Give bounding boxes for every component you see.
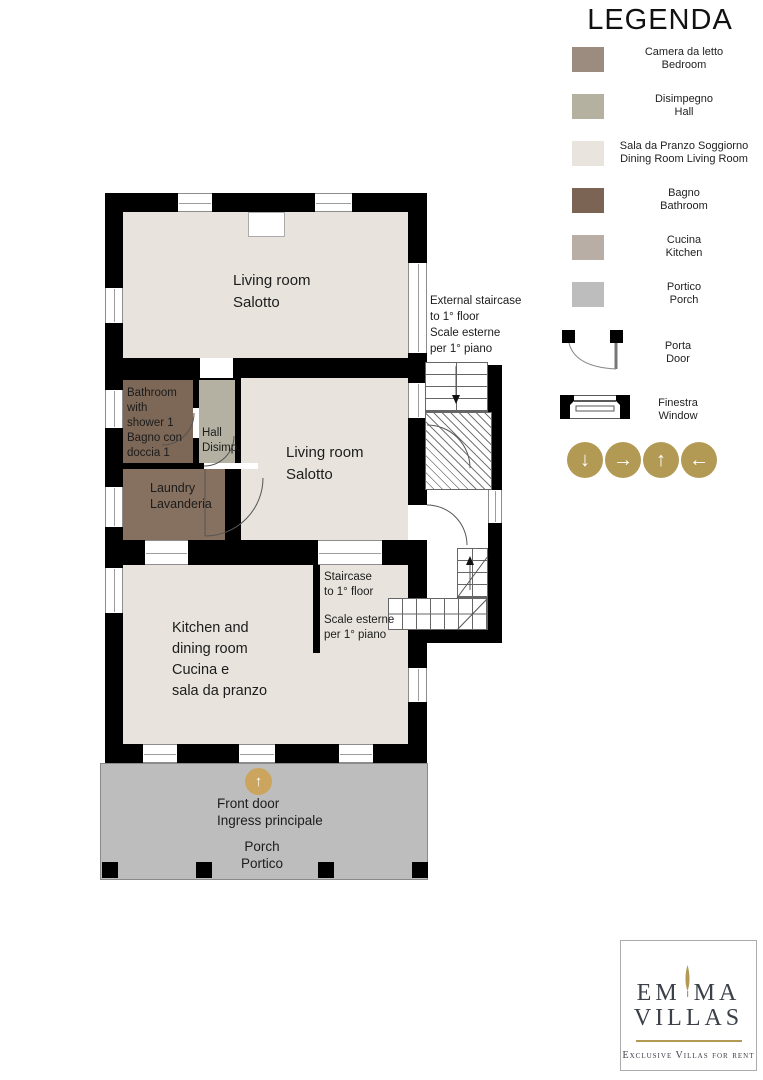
legend-item-door: Porta Door xyxy=(556,328,763,377)
emmavillas-logo: EM MA VILLAS Exclusive Villas for rent xyxy=(620,940,757,1071)
external-staircase-treads xyxy=(425,362,488,412)
window-symbol xyxy=(488,490,502,523)
label-line: Portico xyxy=(212,855,312,872)
legend-label: Bagno Bathroom xyxy=(604,187,763,213)
window-symbol xyxy=(339,744,373,763)
porch-column xyxy=(196,862,212,878)
door-opening-living1 xyxy=(200,358,233,378)
internal-staircase-label: Staircase to 1° floor Scale esterne per … xyxy=(324,570,394,643)
label-line: Portico xyxy=(604,281,763,294)
label-line: External staircase xyxy=(430,293,521,309)
label-line: Camera da letto xyxy=(604,46,763,59)
window-symbol xyxy=(105,288,123,323)
legend-label: Finestra Window xyxy=(630,397,726,423)
label-line: Bedroom xyxy=(604,59,763,72)
window-symbol xyxy=(315,193,352,212)
legend-item-dining-living: Sala da Pranzo Soggiorno Dining Room Liv… xyxy=(556,140,763,166)
label-line: with xyxy=(127,401,182,416)
logo-word-emma: EM MA xyxy=(637,965,741,1004)
label-line: Ingress principale xyxy=(217,812,323,829)
hall-label: Hall Disimp. xyxy=(202,426,240,456)
label-line: Cucina xyxy=(604,234,763,247)
door-opening-laundry xyxy=(204,463,258,469)
wall-niche xyxy=(248,212,285,237)
kitchen-label: Kitchen and dining room Cucina e sala da… xyxy=(172,618,267,702)
logo-word-villas: VILLAS xyxy=(634,1005,743,1031)
legend-item-window: Finestra Window xyxy=(556,395,763,424)
l-staircase-vertical-run xyxy=(457,548,488,598)
label-line: Porch xyxy=(212,838,312,855)
legend-item-kitchen: Cucina Kitchen xyxy=(556,234,763,260)
framed-opening xyxy=(318,540,382,565)
legend-item-bedroom: Camera da letto Bedroom xyxy=(556,46,763,72)
label-line: shower 1 xyxy=(127,416,182,431)
label-line: Finestra xyxy=(630,397,726,410)
door-opening-landing xyxy=(408,505,427,540)
window-symbol xyxy=(105,390,123,428)
logo-divider xyxy=(636,1040,742,1042)
porch-label: Porch Portico xyxy=(212,838,312,872)
label-line: Living room xyxy=(233,270,311,292)
label-line: doccia 1 xyxy=(127,446,182,461)
window-symbol xyxy=(239,744,275,763)
label-line: Kitchen and xyxy=(172,618,267,639)
legend-label: Disimpegno Hall xyxy=(604,93,763,119)
color-swatch xyxy=(572,94,604,119)
legend-label: Porta Door xyxy=(630,340,726,366)
living1-label: Living room Salotto xyxy=(233,270,311,314)
label-line: per 1° piano xyxy=(324,628,394,643)
cypress-tree-icon xyxy=(682,965,693,1001)
arrow-right-icon: → xyxy=(605,442,641,478)
label-line: Sala da Pranzo Soggiorno xyxy=(604,140,763,153)
legend-label: Camera da letto Bedroom xyxy=(604,46,763,72)
label-line: Dining Room Living Room xyxy=(604,153,763,166)
front-door-arrow-icon: ↑ xyxy=(245,768,272,795)
window-symbol xyxy=(143,744,177,763)
color-swatch xyxy=(572,235,604,260)
logo-text: MA xyxy=(694,982,741,1004)
label-line: Window xyxy=(630,410,726,423)
legend-item-porch: Portico Porch xyxy=(556,281,763,307)
label-line: Bathroom xyxy=(127,386,182,401)
window-symbol xyxy=(408,263,427,353)
label-line: Porch xyxy=(604,294,763,307)
color-swatch xyxy=(572,47,604,72)
label-line: Front door xyxy=(217,795,323,812)
label-line: Hall xyxy=(202,426,240,441)
label-line: Cucina e xyxy=(172,660,267,681)
label-line: Bagno xyxy=(604,187,763,200)
arrow-down-icon: ↓ xyxy=(567,442,603,478)
logo-tagline: Exclusive Villas for rent xyxy=(623,1050,755,1061)
label-line: Porta xyxy=(630,340,726,353)
front-door-label: Front door Ingress principale xyxy=(217,795,323,829)
bathroom-label: Bathroom with shower 1 Bagno con doccia … xyxy=(127,386,182,461)
label-line: Salotto xyxy=(233,292,311,314)
exterior-stair-wall xyxy=(427,628,502,643)
label-line: Lavanderia xyxy=(150,496,212,512)
window-symbol xyxy=(408,668,427,702)
label-line: Scale esterne xyxy=(324,613,394,628)
porch-column xyxy=(102,862,118,878)
label-line: Disimpegno xyxy=(604,93,763,106)
label-line: Bagno con xyxy=(127,431,182,446)
logo-text: EM xyxy=(637,982,681,1004)
color-swatch xyxy=(572,188,604,213)
legend-panel: LEGENDA Camera da letto Bedroom Disimpeg… xyxy=(556,4,763,478)
window-symbol-icon xyxy=(560,395,630,424)
label-line: Door xyxy=(630,353,726,366)
label-line: Kitchen xyxy=(604,247,763,260)
porch-column xyxy=(412,862,428,878)
label-line: Laundry xyxy=(150,480,212,496)
label-line: to 1° floor xyxy=(430,309,521,325)
staircase-hatched-landing xyxy=(425,412,492,490)
l-staircase-horizontal-run xyxy=(388,598,488,630)
label-line: Bathroom xyxy=(604,200,763,213)
legend-label: Portico Porch xyxy=(604,281,763,307)
label-line: Living room xyxy=(286,442,364,464)
label-line: to 1° floor xyxy=(324,585,394,600)
label-line: dining room xyxy=(172,639,267,660)
door-symbol-icon xyxy=(560,328,630,377)
window-symbol xyxy=(178,193,212,212)
label-line: Disimp. xyxy=(202,441,240,456)
legend-item-hall: Disimpegno Hall xyxy=(556,93,763,119)
label-line: sala da pranzo xyxy=(172,681,267,702)
window-symbol xyxy=(105,487,123,527)
direction-arrows: ↓ → ↑ ← xyxy=(567,442,763,478)
door-opening-bathroom xyxy=(193,408,199,438)
label-line: per 1° piano xyxy=(430,341,521,357)
label-line: Scale esterne xyxy=(430,325,521,341)
color-swatch xyxy=(572,141,604,166)
label-line: Hall xyxy=(604,106,763,119)
staircase-partition-wall xyxy=(313,565,320,653)
arrow-up-icon: ↑ xyxy=(643,442,679,478)
external-staircase-label: External staircase to 1° floor Scale est… xyxy=(430,293,521,357)
color-swatch xyxy=(572,282,604,307)
arrow-left-icon: ← xyxy=(681,442,717,478)
legend-title: LEGENDA xyxy=(556,4,763,37)
laundry-label: Laundry Lavanderia xyxy=(150,480,212,512)
label-line: Staircase xyxy=(324,570,394,585)
framed-opening xyxy=(145,540,188,565)
door-arc-landing xyxy=(427,505,467,545)
floorplan-page: Living room Salotto External staircase t… xyxy=(0,0,763,1080)
legend-label: Cucina Kitchen xyxy=(604,234,763,260)
porch-column xyxy=(318,862,334,878)
label-line: Salotto xyxy=(286,464,364,486)
living2-label: Living room Salotto xyxy=(286,442,364,486)
legend-item-bathroom: Bagno Bathroom xyxy=(556,187,763,213)
window-symbol xyxy=(105,568,123,613)
legend-label: Sala da Pranzo Soggiorno Dining Room Liv… xyxy=(604,140,763,166)
